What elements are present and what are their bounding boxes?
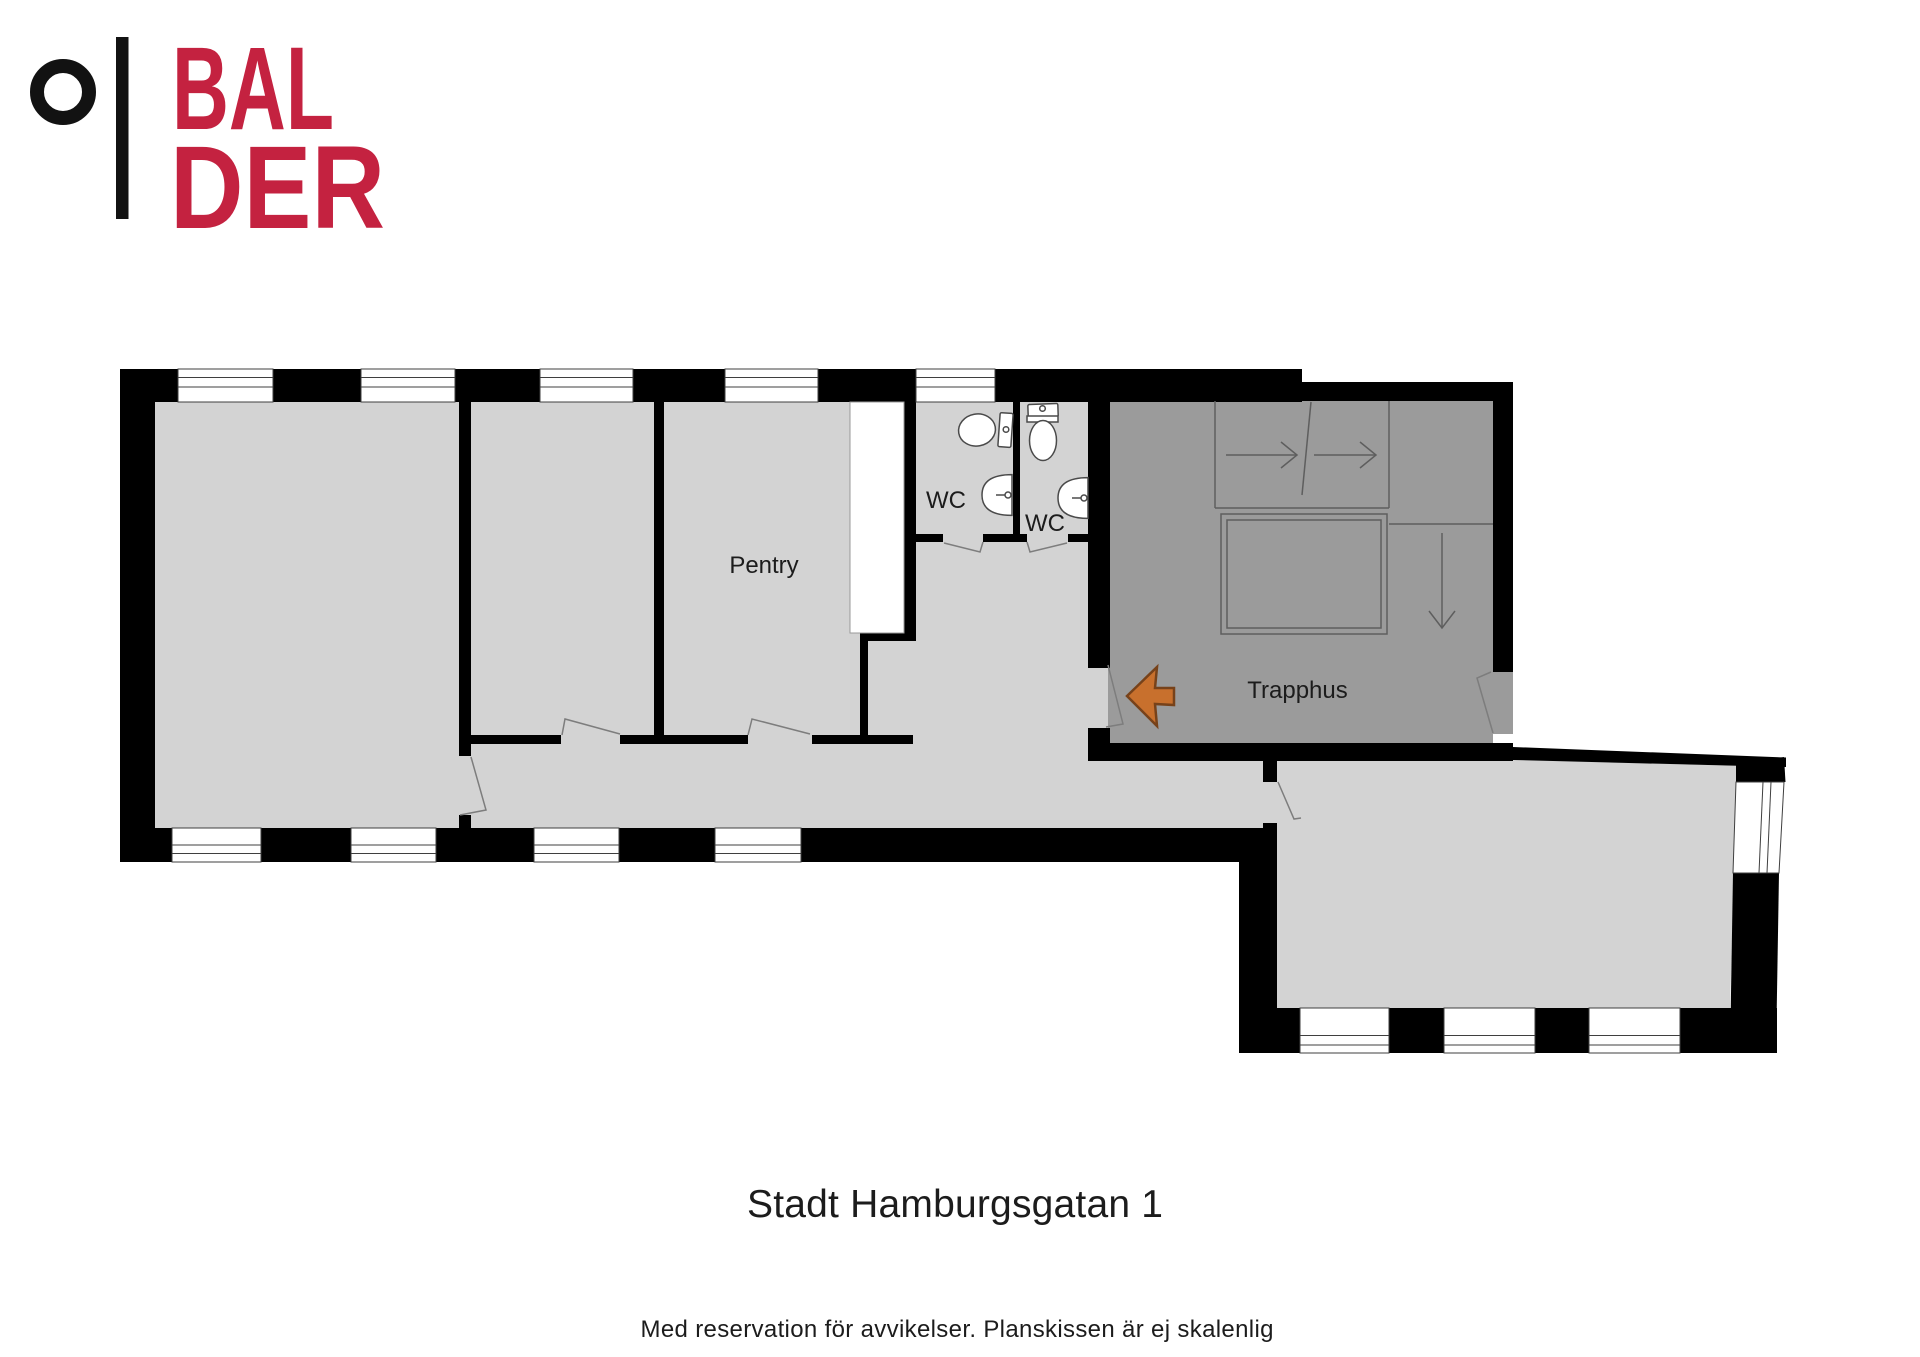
- svg-text:DER: DER: [170, 122, 385, 254]
- svg-text:Med reservation för avvikelser: Med reservation för avvikelser. Planskis…: [641, 1316, 1274, 1343]
- svg-text:WC: WC: [926, 487, 966, 514]
- svg-text:WC: WC: [1025, 510, 1065, 537]
- svg-text:Stadt Hamburgsgatan 1: Stadt Hamburgsgatan 1: [747, 1183, 1163, 1226]
- svg-text:Trapphus: Trapphus: [1247, 677, 1348, 704]
- svg-text:Pentry: Pentry: [729, 552, 798, 579]
